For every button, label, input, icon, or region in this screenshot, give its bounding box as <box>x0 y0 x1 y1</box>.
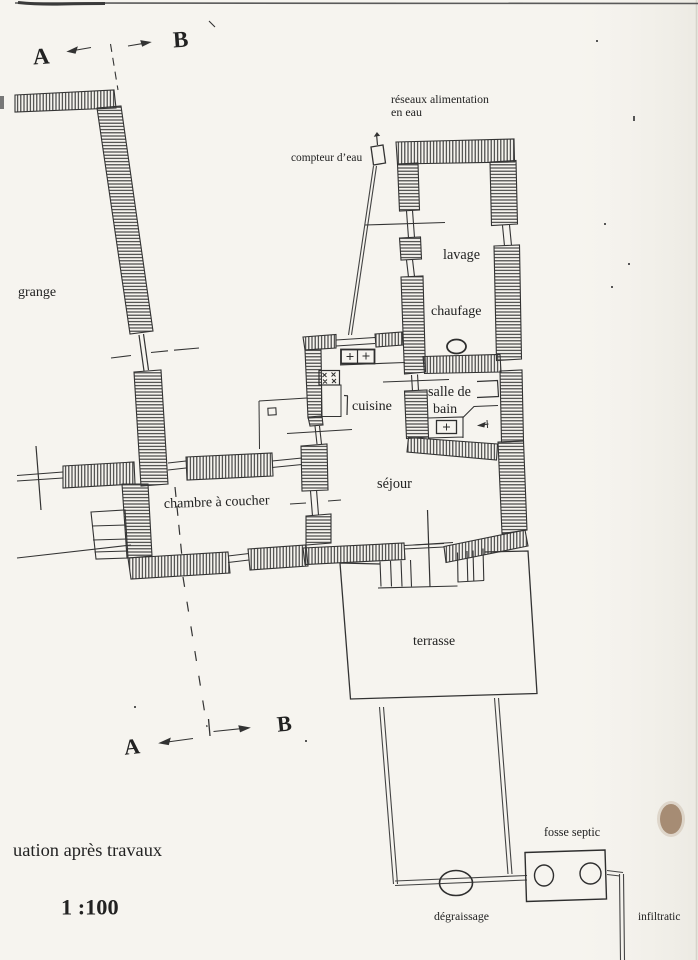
svg-text:1 :100: 1 :100 <box>61 895 119 920</box>
svg-text:bain: bain <box>433 402 457 417</box>
svg-text:infiltratic: infiltratic <box>638 911 680 923</box>
svg-text:grange: grange <box>18 285 56 300</box>
svg-text:en eau: en eau <box>391 105 422 119</box>
svg-text:terrasse: terrasse <box>413 633 455 648</box>
svg-text:fosse septic: fosse septic <box>544 825 600 839</box>
svg-text:A: A <box>32 43 51 69</box>
svg-text:réseaux alimentation: réseaux alimentation <box>391 92 489 106</box>
svg-text:salle de: salle de <box>428 384 471 400</box>
svg-text:cuisine: cuisine <box>352 398 392 414</box>
svg-text:lavage: lavage <box>443 247 480 263</box>
svg-text:dégraissage: dégraissage <box>434 909 489 923</box>
svg-text:A: A <box>123 733 142 760</box>
svg-text:compteur d’eau: compteur d’eau <box>291 152 362 164</box>
svg-text:uation après travaux: uation après travaux <box>13 840 162 860</box>
svg-text:chaufage: chaufage <box>431 304 482 319</box>
svg-text:B: B <box>172 26 189 52</box>
svg-text:séjour: séjour <box>377 476 412 492</box>
svg-text:B: B <box>276 710 294 736</box>
